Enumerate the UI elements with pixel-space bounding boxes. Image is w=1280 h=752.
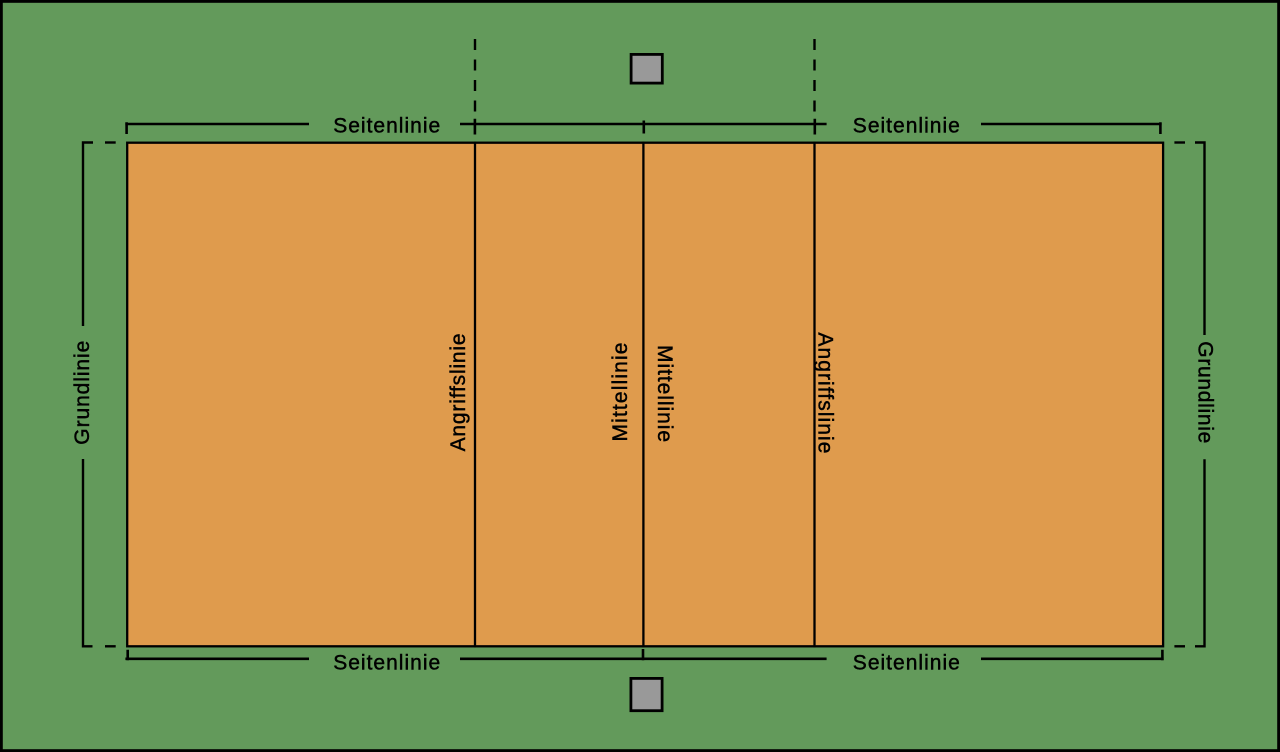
svg-text:Angriffslinie: Angriffslinie [447,333,470,451]
svg-text:Angriffslinie: Angriffslinie [814,332,837,453]
svg-text:Seitenlinie: Seitenlinie [333,114,440,137]
svg-text:Mittellinie: Mittellinie [653,345,676,442]
svg-text:Seitenlinie: Seitenlinie [853,114,960,137]
svg-text:Seitenlinie: Seitenlinie [853,651,960,674]
svg-text:Grundlinie: Grundlinie [71,341,94,445]
svg-text:Grundlinie: Grundlinie [1193,341,1216,443]
svg-text:Seitenlinie: Seitenlinie [333,651,440,674]
svg-text:Mittellinie: Mittellinie [609,343,632,442]
